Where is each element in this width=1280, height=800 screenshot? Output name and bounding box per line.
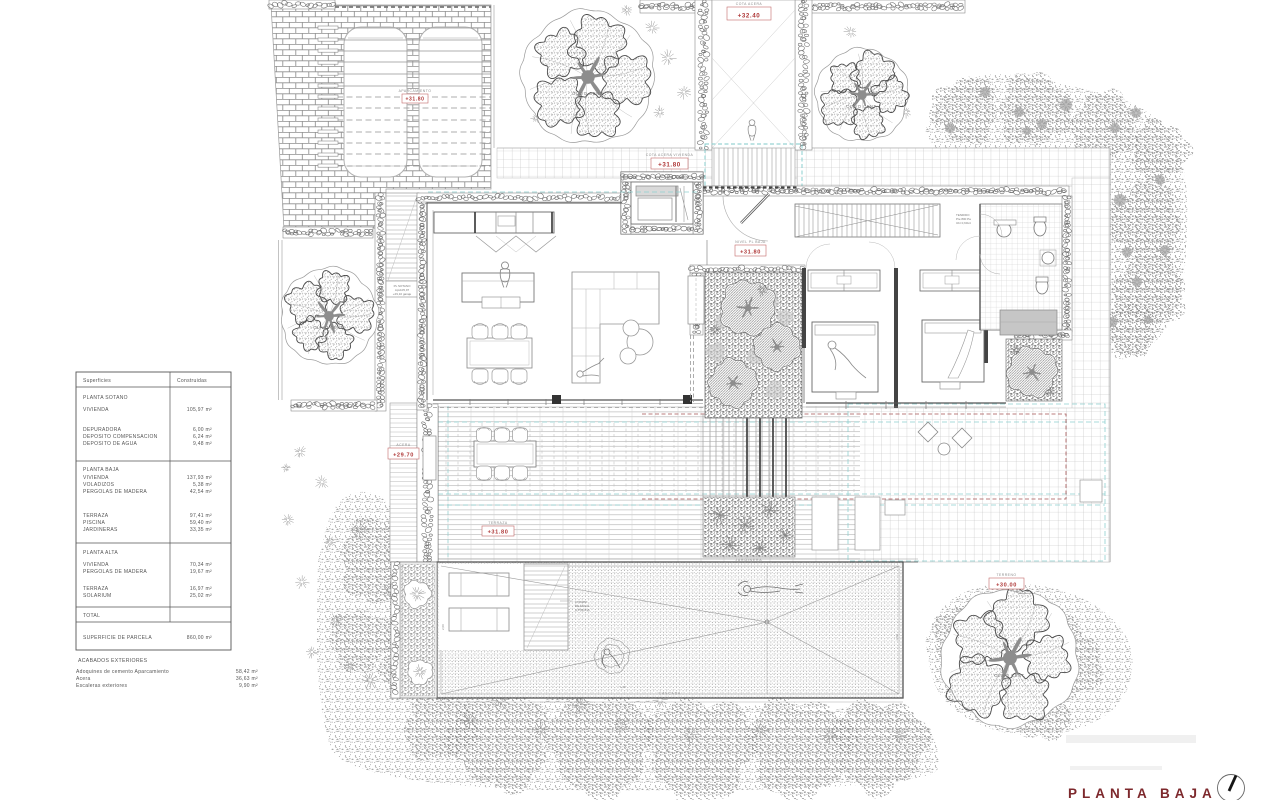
svg-text:Acera: Acera [76, 676, 91, 682]
svg-text:+31.80: +31.80 [740, 249, 761, 255]
svg-text:PLANTA SOTANO: PLANTA SOTANO [83, 395, 128, 401]
svg-text:+31.80: +31.80 [488, 529, 509, 535]
svg-text:2,00: 2,00 [441, 624, 445, 630]
svg-text:PERGOLAS DE MADERA: PERGOLAS DE MADERA [83, 489, 147, 495]
svg-text:SUPERFICIE DE PARCELA: SUPERFICIE DE PARCELA [83, 635, 152, 641]
svg-text:VIVIENDA: VIVIENDA [83, 562, 109, 568]
svg-text:VOLADIZOS: VOLADIZOS [83, 482, 115, 488]
svg-text:SOLARIUM: SOLARIUM [83, 593, 112, 599]
svg-text:ACERA: ACERA [396, 443, 410, 447]
svg-text:Superficies: Superficies [83, 378, 111, 384]
svg-text:DEPOSITO DE AGUA: DEPOSITO DE AGUA [83, 441, 138, 447]
svg-text:16,97 m²: 16,97 m² [190, 586, 212, 592]
svg-text:Construidas: Construidas [177, 378, 207, 384]
svg-text:PERGOLAS DE MADERA: PERGOLAS DE MADERA [83, 569, 147, 575]
svg-text:TOTAL: TOTAL [83, 613, 100, 619]
svg-text:Adoquines de cemento Aparcamie: Adoquines de cemento Aparcamiento [76, 669, 169, 675]
svg-text:APARCAMIENTO: APARCAMIENTO [399, 89, 432, 93]
svg-text:PLANTA BAJA: PLANTA BAJA [1068, 786, 1217, 800]
svg-text:DEPURADORA: DEPURADORA [83, 427, 122, 433]
svg-text:DEPOSITO COMPENSACION: DEPOSITO COMPENSACION [83, 434, 158, 440]
svg-text:A PISCINA: A PISCINA [575, 608, 590, 612]
svg-text:NIVEL PL BAJA: NIVEL PL BAJA [735, 240, 766, 244]
svg-text:9,48 m²: 9,48 m² [193, 441, 212, 447]
svg-text:6,00 m²: 6,00 m² [193, 427, 212, 433]
svg-text:CASCADA: CASCADA [659, 692, 681, 696]
svg-text:OLIVO CENT.: OLIVO CENT. [846, 104, 878, 109]
svg-text:Escaleras exteriores: Escaleras exteriores [76, 683, 127, 689]
svg-text:VIVIENDA: VIVIENDA [83, 407, 109, 413]
svg-text:59,40 m²: 59,40 m² [190, 520, 212, 526]
svg-text:+31.80: +31.80 [658, 161, 681, 168]
svg-text:42,54 m²: 42,54 m² [190, 489, 212, 495]
svg-text:TERRAZA: TERRAZA [488, 521, 508, 525]
svg-text:97,41 m²: 97,41 m² [190, 513, 212, 519]
svg-text:VIVIENDA: VIVIENDA [83, 475, 109, 481]
svg-text:19,67 m²: 19,67 m² [190, 569, 212, 575]
svg-text:36,63 m²: 36,63 m² [236, 676, 258, 682]
svg-text:58,42 m²: 58,42 m² [236, 669, 258, 675]
svg-text:70,34 m²: 70,34 m² [190, 562, 212, 568]
svg-text:OLIVO CENT.: OLIVO CENT. [994, 673, 1026, 678]
svg-text:TERRAZA: TERRAZA [83, 586, 109, 592]
svg-text:COTA ACERA VIVIENDA: COTA ACERA VIVIENDA [646, 153, 694, 157]
svg-text:25,02 m²: 25,02 m² [190, 593, 212, 599]
svg-text:+31.80: +31.80 [405, 96, 424, 102]
svg-text:PLANTA BAJA: PLANTA BAJA [83, 467, 119, 473]
svg-text:6,24 m²: 6,24 m² [193, 434, 212, 440]
svg-text:OLIVO CENT.: OLIVO CENT. [572, 91, 604, 96]
svg-text:137,93 m²: 137,93 m² [187, 475, 212, 481]
svg-text:+32.40: +32.40 [738, 12, 761, 19]
svg-text:TERRAZA: TERRAZA [83, 513, 109, 519]
svg-text:1,20: 1,20 [620, 685, 626, 689]
svg-text:ACABADOS EXTERIORES: ACABADOS EXTERIORES [78, 658, 148, 664]
svg-text:JARDINERAS: JARDINERAS [83, 527, 118, 533]
svg-text:860,00 m²: 860,00 m² [187, 635, 212, 641]
svg-text:+29,10 garaje: +29,10 garaje [393, 292, 412, 296]
svg-text:Ubr 0,60x4: Ubr 0,60x4 [956, 221, 971, 225]
svg-text:+29.70: +29.70 [393, 452, 414, 458]
svg-text:PLANTA ALTA: PLANTA ALTA [83, 550, 118, 556]
svg-text:105,97 m²: 105,97 m² [187, 407, 212, 413]
svg-text:TERRENO: TERRENO [996, 573, 1016, 577]
svg-text:33,35 m²: 33,35 m² [190, 527, 212, 533]
svg-text:+30.00: +30.00 [996, 582, 1017, 588]
svg-text:OLIVO CENT.: OLIVO CENT. [313, 325, 345, 330]
svg-text:COTA ACERA: COTA ACERA [736, 2, 763, 6]
svg-text:5,38 m²: 5,38 m² [193, 482, 212, 488]
svg-text:PISCINA: PISCINA [83, 520, 105, 526]
svg-text:3,00: 3,00 [895, 634, 899, 640]
svg-text:9,90 m²: 9,90 m² [239, 683, 258, 689]
